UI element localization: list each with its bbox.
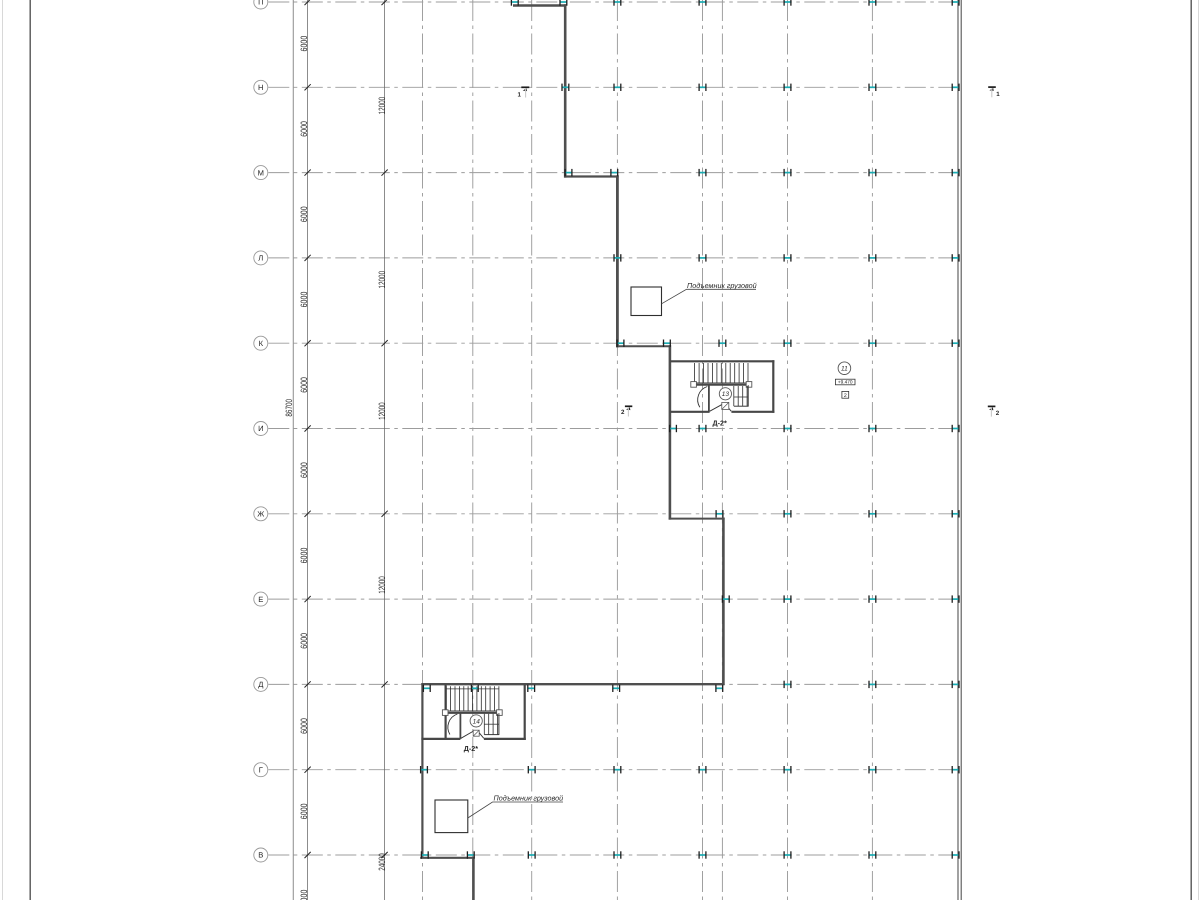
svg-text:6000: 6000 xyxy=(299,718,309,734)
svg-text:14: 14 xyxy=(473,718,481,725)
svg-text:6000: 6000 xyxy=(299,292,309,308)
svg-text:Н: Н xyxy=(258,83,263,92)
svg-text:2: 2 xyxy=(621,409,625,416)
svg-text:Д: Д xyxy=(258,680,263,689)
svg-text:Ж: Ж xyxy=(257,510,264,519)
svg-text:12000: 12000 xyxy=(377,576,387,594)
svg-text:И: И xyxy=(258,424,263,433)
svg-text:6000: 6000 xyxy=(299,548,309,564)
svg-text:В: В xyxy=(258,851,263,860)
svg-text:2: 2 xyxy=(844,393,847,399)
svg-text:1: 1 xyxy=(518,92,522,99)
svg-text:6000: 6000 xyxy=(299,377,309,393)
svg-text:Подъемник грузовой: Подъемник грузовой xyxy=(494,794,564,803)
svg-text:1: 1 xyxy=(996,91,1000,98)
svg-text:Г: Г xyxy=(259,765,263,774)
svg-text:Л: Л xyxy=(258,254,263,263)
svg-text:К: К xyxy=(259,339,264,348)
svg-text:П: П xyxy=(258,0,263,7)
svg-text:6000: 6000 xyxy=(299,206,309,222)
svg-text:Д-2*: Д-2* xyxy=(464,744,479,753)
svg-text:12000: 12000 xyxy=(377,402,387,420)
svg-text:6000: 6000 xyxy=(299,803,309,819)
svg-text:86700: 86700 xyxy=(284,399,294,417)
svg-text:11: 11 xyxy=(841,366,848,373)
svg-text:Подъемник грузовой: Подъемник грузовой xyxy=(687,281,757,290)
svg-text:6000: 6000 xyxy=(299,633,309,649)
svg-text:6000: 6000 xyxy=(299,36,309,52)
svg-text:+9.470: +9.470 xyxy=(838,380,853,386)
svg-text:6000: 6000 xyxy=(299,121,309,137)
svg-text:М: М xyxy=(258,168,264,177)
svg-text:6000: 6000 xyxy=(299,462,309,478)
svg-text:12000: 12000 xyxy=(377,97,387,115)
svg-text:Д-2*: Д-2* xyxy=(713,418,728,427)
svg-text:12000: 12000 xyxy=(377,271,387,289)
svg-text:13: 13 xyxy=(722,391,730,398)
svg-text:2: 2 xyxy=(996,410,1000,417)
svg-text:24000: 24000 xyxy=(377,853,387,871)
svg-text:6000: 6000 xyxy=(299,890,309,900)
svg-text:Е: Е xyxy=(258,595,263,604)
